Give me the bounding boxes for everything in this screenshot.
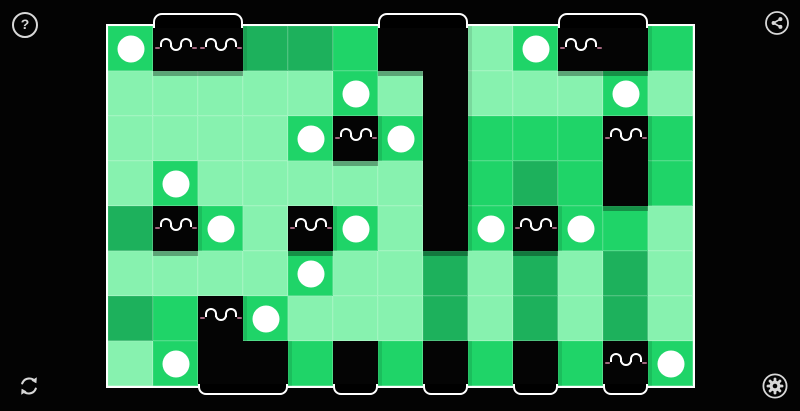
- tile-cell-r6c1[interactable]: [108, 251, 153, 296]
- tile-cell-r2c1[interactable]: [108, 71, 153, 116]
- tile-cell-r4c7[interactable]: [378, 161, 423, 206]
- white-dot: [297, 125, 324, 152]
- tile-cell-r6c3[interactable]: [198, 251, 243, 296]
- tile-cell-r3c2[interactable]: [153, 116, 198, 161]
- block-bottom-tab: [198, 384, 288, 395]
- tile-cell-r7c7[interactable]: [378, 296, 423, 341]
- blush-mark: [642, 362, 647, 364]
- block-top-tab: [558, 13, 648, 28]
- tile-cell-r8c5[interactable]: [288, 341, 333, 386]
- tile-cell-r6c8[interactable]: [423, 251, 468, 296]
- block-face-icon: [158, 36, 194, 60]
- blush-mark: [605, 362, 610, 364]
- white-dot: [162, 350, 189, 377]
- white-dot: [657, 350, 684, 377]
- block-cell-r1c12[interactable]: [603, 26, 648, 71]
- block-face-icon: [203, 306, 239, 330]
- question-mark-icon: ?: [12, 12, 38, 38]
- mouth-icon: [215, 44, 227, 51]
- blush-mark: [192, 227, 197, 229]
- tile-cell-r8c7[interactable]: [378, 341, 423, 386]
- tile-cell-r4c5[interactable]: [288, 161, 333, 206]
- block-bottom-tab: [333, 384, 378, 395]
- tile-cell-r4c9[interactable]: [468, 161, 513, 206]
- tile-cell-r4c11[interactable]: [558, 161, 603, 206]
- tile-cell-r6c13[interactable]: [648, 251, 693, 296]
- settings-button[interactable]: [758, 369, 792, 403]
- tile-cell-r7c8[interactable]: [423, 296, 468, 341]
- white-dot: [252, 305, 279, 332]
- block-face-icon: [518, 216, 554, 240]
- white-dot: [522, 35, 549, 62]
- share-icon: [764, 10, 790, 36]
- tile-cell-r6c6[interactable]: [333, 251, 378, 296]
- tile-cell-r7c1[interactable]: [108, 296, 153, 341]
- white-dot: [162, 170, 189, 197]
- block-cell-r3c8[interactable]: [423, 116, 468, 161]
- tile-cell-r2c10[interactable]: [513, 71, 558, 116]
- blush-mark: [597, 47, 602, 49]
- block-cell-r8c6[interactable]: [333, 341, 378, 386]
- white-dot: [207, 215, 234, 242]
- tile-cell-r5c12[interactable]: [603, 206, 648, 251]
- tile-cell-r4c1[interactable]: [108, 161, 153, 206]
- mouth-icon: [620, 134, 632, 141]
- blush-mark: [200, 47, 205, 49]
- tile-cell-r3c1[interactable]: [108, 116, 153, 161]
- block-cell-r4c8[interactable]: [423, 161, 468, 206]
- mouth-icon: [575, 44, 587, 51]
- tile-cell-r7c6[interactable]: [333, 296, 378, 341]
- restart-icon: [16, 373, 42, 399]
- tile-cell-r2c4[interactable]: [243, 71, 288, 116]
- blush-mark: [552, 227, 557, 229]
- tile-cell-r5c13[interactable]: [648, 206, 693, 251]
- tile-cell-r4c4[interactable]: [243, 161, 288, 206]
- mouth-icon: [530, 224, 542, 231]
- tile-cell-r2c3[interactable]: [198, 71, 243, 116]
- block-bottom-tab: [513, 384, 558, 395]
- tile-cell-r6c4[interactable]: [243, 251, 288, 296]
- tile-cell-r7c9[interactable]: [468, 296, 513, 341]
- blush-mark: [372, 137, 377, 139]
- blush-mark: [642, 137, 647, 139]
- mouth-icon: [305, 224, 317, 231]
- white-dot: [387, 125, 414, 152]
- tile-cell-r7c13[interactable]: [648, 296, 693, 341]
- tile-cell-r4c6[interactable]: [333, 161, 378, 206]
- tile-cell-r1c5[interactable]: [288, 26, 333, 71]
- white-dot: [297, 260, 324, 287]
- blush-mark: [155, 47, 160, 49]
- tile-cell-r5c7[interactable]: [378, 206, 423, 251]
- blush-mark: [200, 317, 205, 319]
- tile-cell-r4c13[interactable]: [648, 161, 693, 206]
- mouth-icon: [215, 314, 227, 321]
- block-face-icon: [338, 126, 374, 150]
- tile-cell-r4c3[interactable]: [198, 161, 243, 206]
- block-cell-r1c7[interactable]: [378, 26, 423, 71]
- block-cell-r8c4[interactable]: [243, 341, 288, 386]
- block-face-icon: [293, 216, 329, 240]
- mouth-icon: [350, 134, 362, 141]
- mouth-icon: [620, 359, 632, 366]
- tile-cell-r7c5[interactable]: [288, 296, 333, 341]
- tile-cell-r1c13[interactable]: [648, 26, 693, 71]
- blush-mark: [515, 227, 520, 229]
- tile-cell-r8c9[interactable]: [468, 341, 513, 386]
- block-face-icon: [608, 126, 644, 150]
- tile-cell-r6c10[interactable]: [513, 251, 558, 296]
- tile-cell-r8c1[interactable]: [108, 341, 153, 386]
- tile-cell-r2c5[interactable]: [288, 71, 333, 116]
- tile-cell-r5c4[interactable]: [243, 206, 288, 251]
- tile-cell-r2c13[interactable]: [648, 71, 693, 116]
- tile-cell-r1c6[interactable]: [333, 26, 378, 71]
- tile-cell-r3c11[interactable]: [558, 116, 603, 161]
- tile-cell-r6c12[interactable]: [603, 251, 648, 296]
- tile-cell-r2c11[interactable]: [558, 71, 603, 116]
- block-cell-r8c8[interactable]: [423, 341, 468, 386]
- mouth-icon: [170, 224, 182, 231]
- block-bottom-tab: [603, 384, 648, 395]
- tile-cell-r3c4[interactable]: [243, 116, 288, 161]
- mouth-icon: [170, 44, 182, 51]
- help-button[interactable]: ?: [8, 8, 42, 42]
- block-face-icon: [203, 36, 239, 60]
- tile-cell-r2c9[interactable]: [468, 71, 513, 116]
- block-cell-r1c8[interactable]: [423, 26, 468, 71]
- blush-mark: [335, 137, 340, 139]
- restart-button[interactable]: [12, 369, 46, 403]
- white-dot: [567, 215, 594, 242]
- tile-cell-r6c7[interactable]: [378, 251, 423, 296]
- block-bottom-tab: [423, 384, 468, 395]
- white-dot: [612, 80, 639, 107]
- white-dot: [117, 35, 144, 62]
- block-cell-r8c10[interactable]: [513, 341, 558, 386]
- tile-cell-r8c11[interactable]: [558, 341, 603, 386]
- white-dot: [342, 215, 369, 242]
- block-cell-r8c3[interactable]: [198, 341, 243, 386]
- gear-icon: [761, 372, 789, 400]
- blush-mark: [290, 227, 295, 229]
- tile-cell-r7c12[interactable]: [603, 296, 648, 341]
- block-face-icon: [158, 216, 194, 240]
- block-cell-r2c8[interactable]: [423, 71, 468, 116]
- tile-cell-r7c10[interactable]: [513, 296, 558, 341]
- block-face-icon: [563, 36, 599, 60]
- block-cell-r4c12[interactable]: [603, 161, 648, 206]
- game-screen: ?: [0, 0, 800, 411]
- tile-cell-r7c11[interactable]: [558, 296, 603, 341]
- white-dot: [477, 215, 504, 242]
- tile-cell-r5c1[interactable]: [108, 206, 153, 251]
- blush-mark: [237, 47, 242, 49]
- tile-cell-r2c7[interactable]: [378, 71, 423, 116]
- block-top-tab: [153, 13, 243, 28]
- tile-cell-r3c10[interactable]: [513, 116, 558, 161]
- tile-cell-r2c2[interactable]: [153, 71, 198, 116]
- board: [108, 26, 693, 386]
- tile-cell-r6c2[interactable]: [153, 251, 198, 296]
- blush-mark: [155, 227, 160, 229]
- tile-cell-r7c2[interactable]: [153, 296, 198, 341]
- tile-cell-r4c10[interactable]: [513, 161, 558, 206]
- block-cell-r5c8[interactable]: [423, 206, 468, 251]
- white-dot: [342, 80, 369, 107]
- tile-cell-r3c3[interactable]: [198, 116, 243, 161]
- tile-cell-r1c4[interactable]: [243, 26, 288, 71]
- block-face-icon: [608, 351, 644, 375]
- tile-cell-r6c9[interactable]: [468, 251, 513, 296]
- blush-mark: [237, 317, 242, 319]
- blush-mark: [560, 47, 565, 49]
- tile-cell-r1c9[interactable]: [468, 26, 513, 71]
- blush-mark: [192, 47, 197, 49]
- tile-cell-r6c11[interactable]: [558, 251, 603, 296]
- blush-mark: [327, 227, 332, 229]
- tile-cell-r3c13[interactable]: [648, 116, 693, 161]
- block-top-tab: [378, 13, 468, 28]
- blush-mark: [605, 137, 610, 139]
- share-button[interactable]: [760, 6, 794, 40]
- tile-cell-r3c9[interactable]: [468, 116, 513, 161]
